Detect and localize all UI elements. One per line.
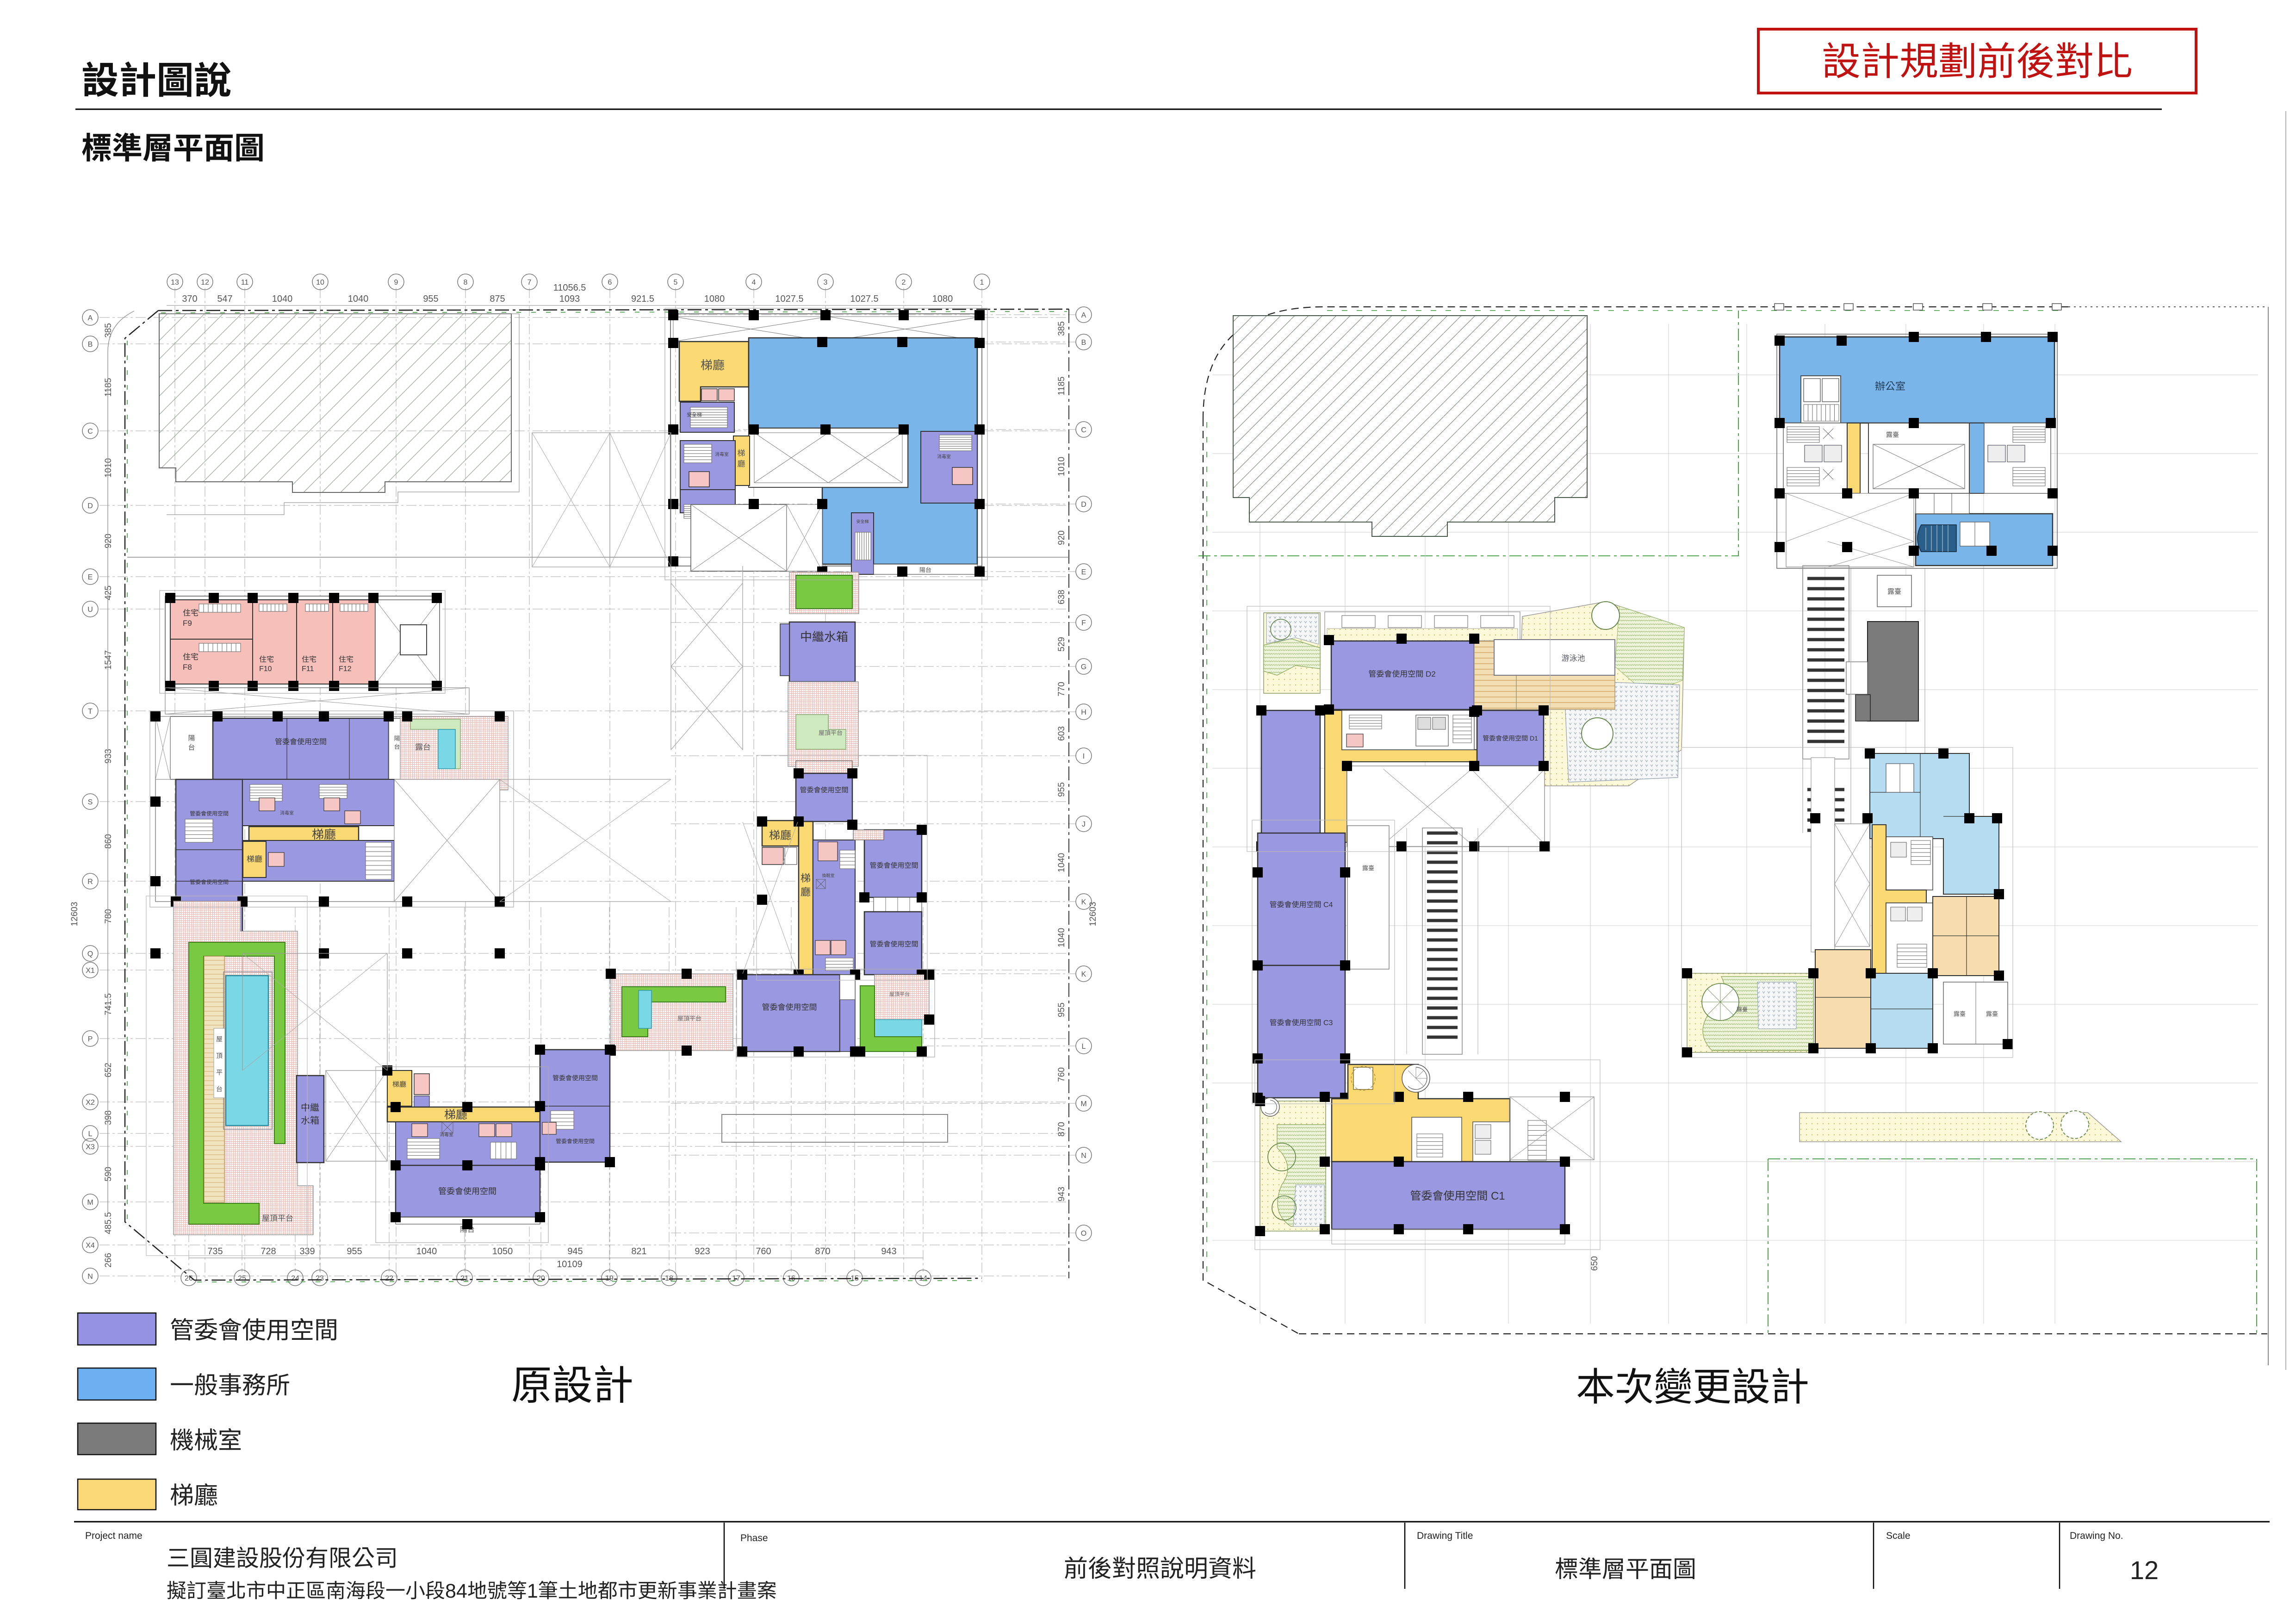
svg-text:原設計: 原設計 xyxy=(511,1353,633,1412)
svg-text:1: 1 xyxy=(980,276,984,287)
svg-text:529: 529 xyxy=(1055,637,1067,652)
svg-text:N: N xyxy=(87,1270,93,1281)
svg-text:760: 760 xyxy=(1055,1067,1067,1082)
svg-text:頂: 頂 xyxy=(216,1051,223,1060)
svg-text:擬訂臺北市中正區南海段一小段84地號等1筆土地都市更新事業計: 擬訂臺北市中正區南海段一小段84地號等1筆土地都市更新事業計畫案 xyxy=(167,1575,777,1604)
svg-text:F: F xyxy=(1081,616,1086,628)
svg-text:R: R xyxy=(87,875,93,886)
svg-text:12603: 12603 xyxy=(68,902,80,927)
svg-text:三圓建設股份有限公司: 三圓建設股份有限公司 xyxy=(167,1540,398,1573)
svg-text:管委會使用空間: 管委會使用空間 xyxy=(552,1073,598,1083)
svg-text:管委會使用空間: 管委會使用空間 xyxy=(869,860,918,870)
svg-text:Project name: Project name xyxy=(85,1528,143,1542)
svg-text:H: H xyxy=(1081,706,1086,717)
svg-text:露臺: 露臺 xyxy=(1886,430,1899,439)
svg-text:廳: 廳 xyxy=(738,457,745,469)
svg-text:1050: 1050 xyxy=(492,1244,513,1257)
svg-text:E: E xyxy=(1081,566,1086,577)
svg-text:管委會使用空間: 管委會使用空間 xyxy=(170,1311,338,1345)
svg-text:943: 943 xyxy=(1055,1187,1067,1201)
svg-text:12: 12 xyxy=(201,276,209,287)
svg-text:955: 955 xyxy=(423,291,438,305)
svg-text:一般事務所: 一般事務所 xyxy=(170,1366,290,1400)
svg-text:1040: 1040 xyxy=(348,291,369,305)
svg-text:水箱: 水箱 xyxy=(301,1113,319,1126)
svg-text:台: 台 xyxy=(188,742,195,752)
svg-text:X1: X1 xyxy=(86,964,95,975)
svg-text:638: 638 xyxy=(1055,590,1067,604)
svg-text:Scale: Scale xyxy=(1886,1528,1911,1542)
svg-text:920: 920 xyxy=(1055,530,1067,545)
svg-text:安全梯: 安全梯 xyxy=(856,518,869,524)
svg-text:22: 22 xyxy=(385,1272,393,1283)
svg-text:12603: 12603 xyxy=(1086,902,1098,927)
svg-text:辦公室: 辦公室 xyxy=(1875,378,1905,393)
svg-text:1040: 1040 xyxy=(1055,853,1067,872)
svg-text:1027.5: 1027.5 xyxy=(850,291,878,305)
svg-text:K: K xyxy=(1081,968,1086,979)
svg-text:C: C xyxy=(1081,423,1086,435)
svg-text:管委會使用空間 D2: 管委會使用空間 D2 xyxy=(1368,667,1435,679)
svg-text:F11: F11 xyxy=(302,662,314,673)
svg-text:F9: F9 xyxy=(183,616,192,628)
svg-text:梯廳: 梯廳 xyxy=(170,1476,218,1511)
svg-text:11056.5: 11056.5 xyxy=(553,280,586,293)
svg-text:屋頂平台: 屋頂平台 xyxy=(819,728,843,737)
svg-text:955: 955 xyxy=(1055,1002,1067,1017)
svg-text:1027.5: 1027.5 xyxy=(775,291,803,305)
svg-text:機械室: 機械室 xyxy=(170,1421,242,1456)
svg-text:M: M xyxy=(87,1196,93,1207)
svg-text:X2: X2 xyxy=(86,1096,95,1107)
svg-text:安全梯: 安全梯 xyxy=(687,411,702,418)
svg-text:A: A xyxy=(1081,309,1086,320)
svg-text:F10: F10 xyxy=(259,662,272,673)
svg-text:921.5: 921.5 xyxy=(631,291,654,305)
svg-text:Q: Q xyxy=(87,947,93,958)
svg-text:管委會使用空間: 管委會使用空間 xyxy=(190,878,229,886)
svg-text:955: 955 xyxy=(347,1244,362,1257)
svg-text:B: B xyxy=(88,338,93,349)
svg-text:11: 11 xyxy=(241,276,249,287)
svg-text:8: 8 xyxy=(464,276,468,287)
svg-text:游泳池: 游泳池 xyxy=(1562,652,1585,663)
svg-text:管委會使用空間: 管委會使用空間 xyxy=(556,1137,595,1145)
svg-text:前後對照說明資料: 前後對照說明資料 xyxy=(1064,1549,1256,1584)
svg-text:管委會使用空間 C3: 管委會使用空間 C3 xyxy=(1270,1016,1333,1027)
svg-text:870: 870 xyxy=(815,1244,830,1257)
svg-text:G: G xyxy=(1081,660,1086,672)
svg-text:Drawing Title: Drawing Title xyxy=(1417,1528,1473,1542)
svg-text:梯廳: 梯廳 xyxy=(701,356,725,373)
svg-text:梯廳: 梯廳 xyxy=(392,1079,406,1089)
svg-text:7: 7 xyxy=(527,276,532,287)
svg-text:露台: 露台 xyxy=(415,740,431,752)
svg-text:管委會使用空間: 管委會使用空間 xyxy=(800,785,848,795)
svg-text:管委會使用空間: 管委會使用空間 xyxy=(190,809,229,817)
svg-text:735: 735 xyxy=(207,1244,223,1257)
svg-text:陽: 陽 xyxy=(394,734,400,742)
svg-text:梯: 梯 xyxy=(800,870,811,885)
svg-text:13: 13 xyxy=(171,276,179,287)
svg-text:設計圖說: 設計圖說 xyxy=(81,50,231,105)
svg-text:露臺: 露臺 xyxy=(1737,1005,1748,1013)
svg-text:S: S xyxy=(88,796,93,807)
svg-text:1040: 1040 xyxy=(1055,928,1067,947)
svg-text:屋頂平台: 屋頂平台 xyxy=(677,1014,701,1022)
svg-text:10109: 10109 xyxy=(557,1257,583,1270)
svg-text:C: C xyxy=(87,425,93,436)
svg-text:中繼: 中繼 xyxy=(301,1100,319,1114)
svg-text:陽: 陽 xyxy=(188,733,195,743)
svg-text:X3: X3 xyxy=(86,1140,95,1151)
svg-text:屋頂平台: 屋頂平台 xyxy=(889,990,910,998)
svg-text:K: K xyxy=(1081,896,1086,907)
svg-text:P: P xyxy=(88,1033,93,1044)
svg-text:X4: X4 xyxy=(86,1239,95,1250)
svg-text:945: 945 xyxy=(567,1244,583,1257)
svg-text:F12: F12 xyxy=(339,662,352,673)
svg-text:2: 2 xyxy=(902,276,906,287)
svg-text:標準層平面圖: 標準層平面圖 xyxy=(81,124,265,168)
svg-text:中繼水箱: 中繼水箱 xyxy=(800,628,848,645)
svg-text:陽台: 陽台 xyxy=(919,565,931,574)
svg-text:485.5: 485.5 xyxy=(101,1212,114,1234)
svg-text:台: 台 xyxy=(394,742,400,751)
svg-text:821: 821 xyxy=(631,1244,646,1257)
svg-text:5: 5 xyxy=(674,276,678,287)
svg-text:3: 3 xyxy=(824,276,828,287)
svg-text:A: A xyxy=(88,311,93,323)
svg-text:管委會使用空間: 管委會使用空間 xyxy=(869,939,918,949)
svg-text:露臺: 露臺 xyxy=(1954,1009,1966,1018)
svg-text:消毒室: 消毒室 xyxy=(715,450,729,457)
svg-text:廳: 廳 xyxy=(800,884,811,899)
svg-text:L: L xyxy=(1082,1040,1086,1051)
svg-text:管委會使用空間 C4: 管委會使用空間 C4 xyxy=(1270,898,1333,909)
svg-text:1185: 1185 xyxy=(1055,377,1067,396)
svg-text:J: J xyxy=(1082,818,1086,829)
svg-text:E: E xyxy=(88,571,93,582)
svg-text:1080: 1080 xyxy=(932,291,953,305)
svg-text:B: B xyxy=(1081,336,1086,347)
svg-text:O: O xyxy=(1081,1227,1086,1238)
svg-text:943: 943 xyxy=(881,1244,896,1257)
svg-text:管委會使用空間: 管委會使用空間 xyxy=(275,735,327,747)
svg-text:Drawing No.: Drawing No. xyxy=(2070,1528,2123,1542)
svg-text:14: 14 xyxy=(919,1272,927,1283)
svg-text:1040: 1040 xyxy=(416,1244,437,1257)
svg-text:梯: 梯 xyxy=(738,447,745,458)
svg-text:M: M xyxy=(1080,1097,1086,1108)
svg-text:露臺: 露臺 xyxy=(1887,586,1901,596)
svg-text:D: D xyxy=(87,499,93,510)
svg-text:台: 台 xyxy=(216,1084,223,1094)
svg-text:管委會使用空間 C1: 管委會使用空間 C1 xyxy=(1410,1187,1505,1203)
svg-text:設計規劃前後對比: 設計規劃前後對比 xyxy=(1822,31,2133,87)
svg-text:管委會使用空間 D1: 管委會使用空間 D1 xyxy=(1483,734,1538,743)
svg-text:23: 23 xyxy=(316,1272,324,1283)
svg-text:385: 385 xyxy=(1055,321,1067,336)
svg-text:12: 12 xyxy=(2130,1549,2159,1587)
svg-text:管委會使用空間: 管委會使用空間 xyxy=(762,1001,817,1012)
svg-text:728: 728 xyxy=(261,1244,276,1257)
svg-text:I: I xyxy=(1083,750,1085,761)
svg-text:266: 266 xyxy=(101,1253,114,1268)
svg-text:923: 923 xyxy=(695,1244,710,1257)
svg-text:梯廳: 梯廳 xyxy=(769,826,791,842)
svg-text:標準層平面圖: 標準層平面圖 xyxy=(1555,1550,1696,1584)
svg-text:換鞋室: 換鞋室 xyxy=(822,872,834,878)
svg-text:547: 547 xyxy=(217,291,232,305)
svg-text:梯廳: 梯廳 xyxy=(247,852,262,864)
svg-text:T: T xyxy=(88,705,93,716)
svg-text:平: 平 xyxy=(216,1068,223,1077)
svg-text:管委會使用空間: 管委會使用空間 xyxy=(438,1185,496,1197)
svg-text:N: N xyxy=(1081,1149,1086,1160)
svg-text:F8: F8 xyxy=(183,660,192,672)
svg-text:消毒室: 消毒室 xyxy=(937,453,951,460)
svg-text:875: 875 xyxy=(490,291,505,305)
svg-text:4: 4 xyxy=(752,276,756,287)
svg-text:1040: 1040 xyxy=(272,291,293,305)
svg-text:10: 10 xyxy=(316,276,324,287)
svg-text:370: 370 xyxy=(182,291,197,305)
svg-text:消毒室: 消毒室 xyxy=(280,809,294,816)
svg-text:梯廳: 梯廳 xyxy=(312,825,336,842)
svg-text:本次變更設計: 本次變更設計 xyxy=(1576,1356,1809,1412)
svg-text:770: 770 xyxy=(1055,682,1067,697)
svg-text:870: 870 xyxy=(1055,1122,1067,1137)
svg-text:9: 9 xyxy=(394,276,398,287)
svg-text:D: D xyxy=(1081,498,1086,509)
svg-text:15: 15 xyxy=(850,1272,859,1283)
svg-text:露臺: 露臺 xyxy=(1986,1009,1998,1018)
svg-text:L: L xyxy=(88,1127,93,1139)
svg-text:955: 955 xyxy=(1055,782,1067,797)
svg-text:385: 385 xyxy=(101,323,114,338)
svg-text:603: 603 xyxy=(1055,726,1067,741)
svg-text:Phase: Phase xyxy=(740,1531,768,1544)
svg-text:25: 25 xyxy=(238,1272,246,1283)
svg-text:1010: 1010 xyxy=(1055,457,1067,476)
svg-text:6: 6 xyxy=(608,276,612,287)
svg-text:露臺: 露臺 xyxy=(1362,863,1374,872)
svg-text:U: U xyxy=(87,603,93,614)
svg-text:760: 760 xyxy=(756,1244,771,1257)
svg-text:消毒室: 消毒室 xyxy=(440,1131,453,1138)
svg-text:24: 24 xyxy=(291,1272,299,1283)
svg-text:屋頂平台: 屋頂平台 xyxy=(262,1212,293,1223)
svg-text:屋: 屋 xyxy=(216,1034,223,1044)
svg-text:1080: 1080 xyxy=(704,291,725,305)
svg-text:650: 650 xyxy=(1588,1256,1600,1271)
